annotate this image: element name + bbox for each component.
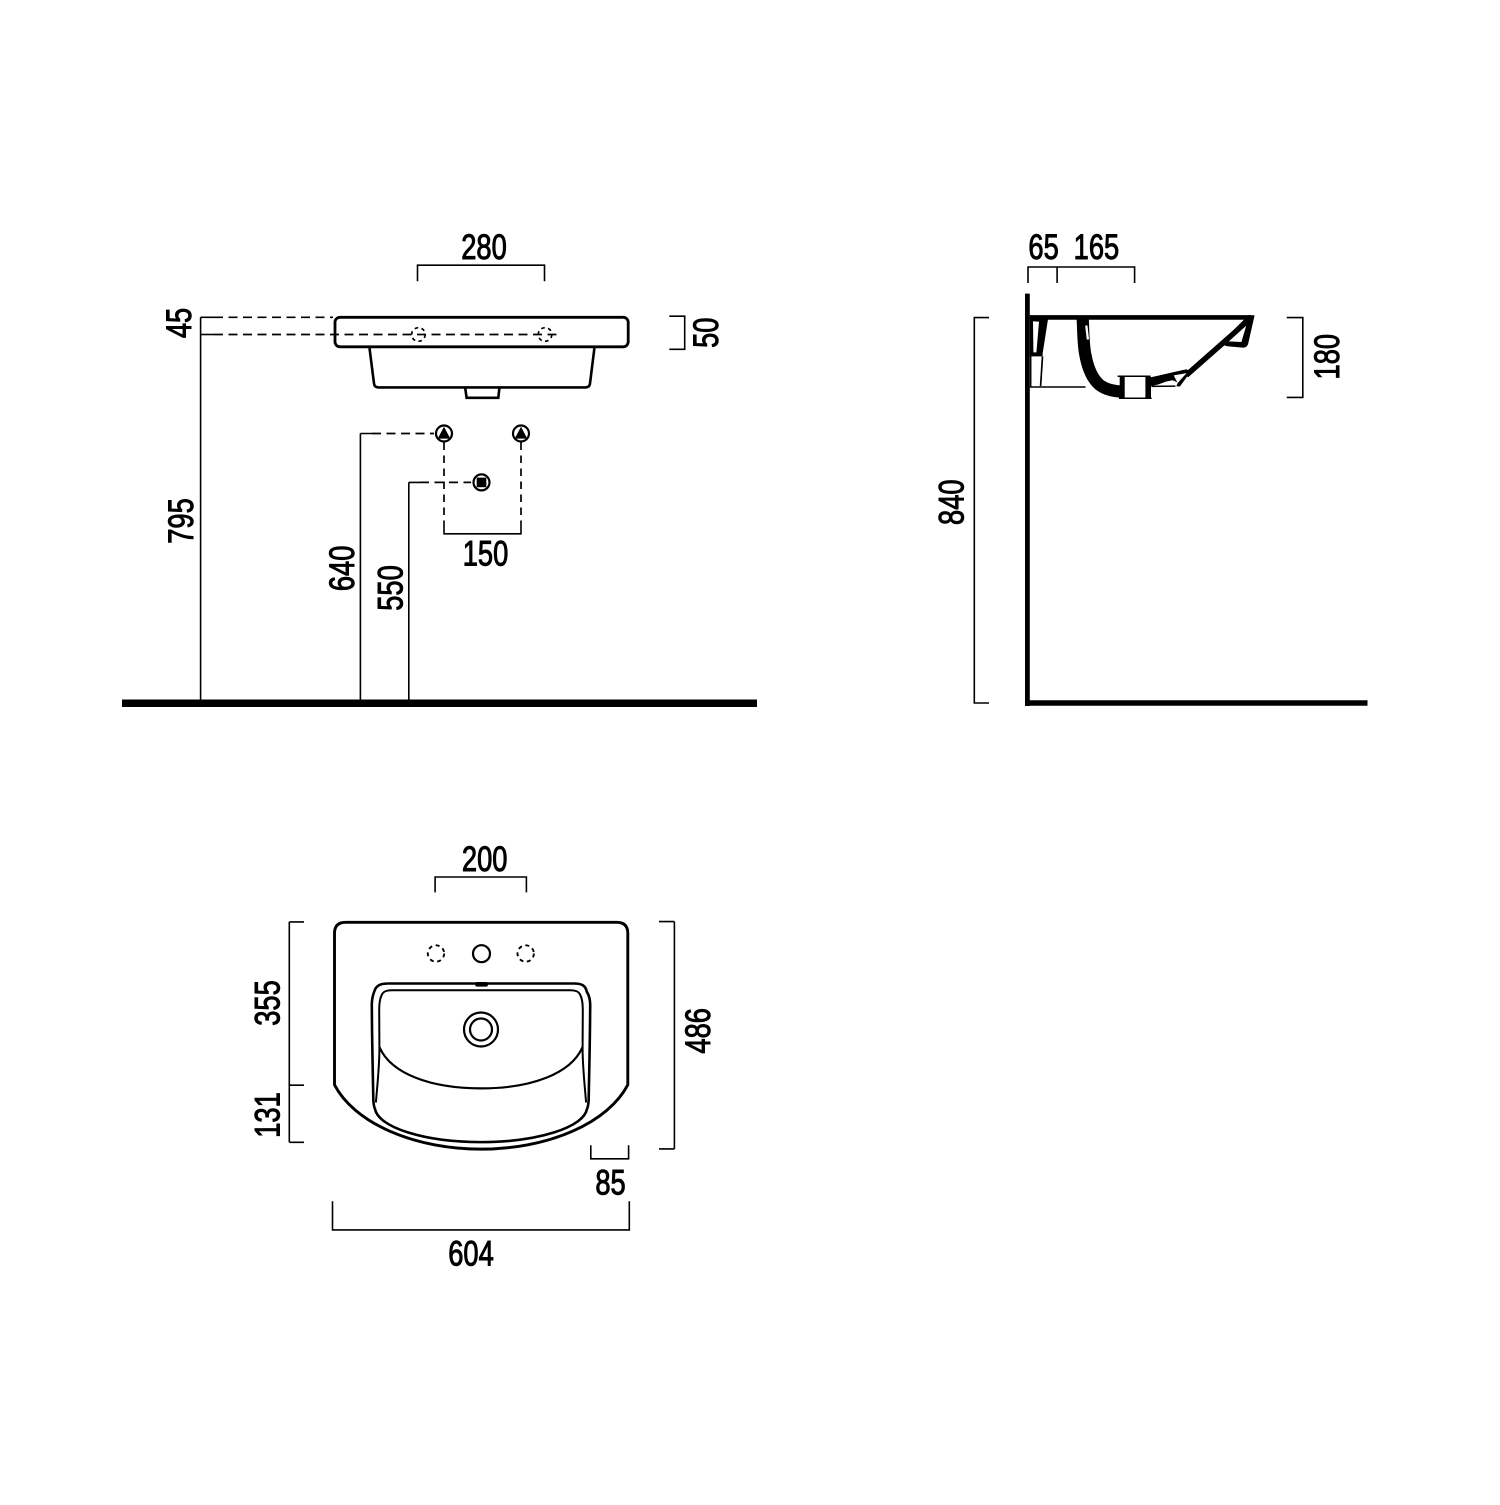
svg-text:165: 165: [1074, 228, 1120, 267]
svg-text:45: 45: [160, 308, 199, 338]
svg-text:486: 486: [679, 1008, 718, 1054]
svg-text:50: 50: [687, 318, 726, 348]
svg-text:840: 840: [932, 479, 971, 525]
svg-text:200: 200: [462, 840, 508, 879]
svg-text:131: 131: [248, 1092, 287, 1138]
svg-text:85: 85: [595, 1163, 625, 1202]
svg-text:180: 180: [1308, 334, 1347, 380]
svg-text:640: 640: [323, 546, 362, 592]
svg-text:550: 550: [371, 565, 410, 611]
svg-text:604: 604: [448, 1234, 494, 1273]
svg-text:150: 150: [463, 534, 509, 573]
svg-text:280: 280: [461, 228, 507, 267]
svg-text:65: 65: [1028, 228, 1058, 267]
svg-text:355: 355: [248, 980, 287, 1026]
svg-text:795: 795: [162, 498, 201, 544]
